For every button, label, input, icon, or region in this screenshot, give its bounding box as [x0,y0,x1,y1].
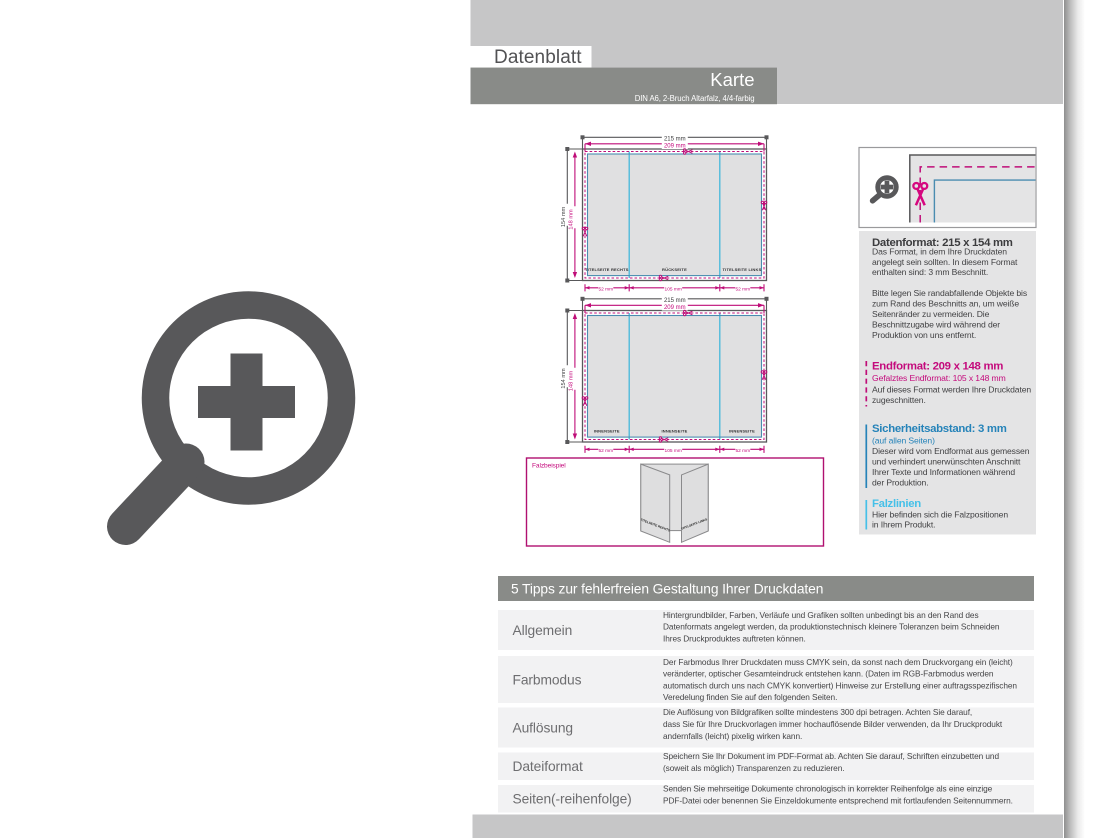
svg-text:Falzbeispiel: Falzbeispiel [532,463,566,470]
svg-text:52 mm: 52 mm [735,448,750,454]
svg-text:automatisch durch uns nach CMY: automatisch durch uns nach CMYK konverti… [663,680,1017,690]
svg-text:(soweit als möglich) Transpare: (soweit als möglich) Transparenzen zu re… [663,763,844,773]
svg-text:Das Format, in dem Ihre Druckd: Das Format, in dem Ihre Druckdaten [872,246,1007,256]
svg-text:veränderter, optischer Gesamte: veränderter, optischer Gesamteindruck en… [663,669,994,679]
svg-text:zugeschnitten.: zugeschnitten. [872,395,926,405]
svg-text:INNENSEITE: INNENSEITE [661,428,687,433]
svg-text:INNENSEITE: INNENSEITE [729,428,755,433]
svg-text:52 mm: 52 mm [598,448,613,454]
svg-text:Datenblatt: Datenblatt [494,47,582,68]
svg-text:Gefalztes Endformat: 105 x 148: Gefalztes Endformat: 105 x 148 mm [872,373,1006,383]
svg-text:209 mm: 209 mm [664,143,686,149]
svg-text:enthalten sind: 3 mm Beschnitt: enthalten sind: 3 mm Beschnitt. [872,267,988,277]
svg-text:Karte: Karte [710,69,754,90]
svg-text:Senden Sie mehrseitige Dokumen: Senden Sie mehrseitige Dokumente chronol… [663,784,993,794]
svg-text:154 mm: 154 mm [561,207,567,228]
svg-text:105 mm: 105 mm [665,448,682,454]
svg-text:Ihres Druckproduktes auftreten: Ihres Druckproduktes auftreten können. [663,633,806,643]
svg-text:Seitenränder zu vermeiden. Die: Seitenränder zu vermeiden. Die [872,309,990,319]
svg-text:Hintergrundbilder, Farben, Ver: Hintergrundbilder, Farben, Verläufe und … [663,610,979,620]
svg-text:Speichern Sie Ihr Dokument im: Speichern Sie Ihr Dokument im PDF-Format… [663,751,999,761]
svg-text:Sicherheitsabstand: 3 mm: Sicherheitsabstand: 3 mm [872,423,1007,435]
svg-text:Falzlinien: Falzlinien [872,498,921,510]
svg-text:Datenformats angelegt werden,: Datenformats angelegt werden, da produkt… [663,622,1000,632]
svg-text:TITELSEITE LINKS: TITELSEITE LINKS [723,267,762,272]
svg-text:Produktion von uns entfernt.: Produktion von uns entfernt. [872,330,976,340]
svg-text:Farbmodus: Farbmodus [513,672,582,687]
svg-text:dass Sie für Ihre Druckvorlage: dass Sie für Ihre Druckvorlagen immer ho… [663,719,1003,729]
svg-text:TITELSEITE RECHTS: TITELSEITE RECHTS [585,267,629,272]
svg-text:52 mm: 52 mm [598,287,613,293]
svg-text:der Produktion.: der Produktion. [872,477,928,487]
svg-text:andernfalls (leicht) pixelig w: andernfalls (leicht) pixelig wirken kann… [663,731,802,741]
svg-text:105 mm: 105 mm [665,287,682,293]
svg-text:Ihrer Texte und Informationen: Ihrer Texte und Informationen während [872,467,1015,477]
svg-text:Veredelung finden Sie auf den: Veredelung finden Sie auf den folgenden … [663,692,837,702]
svg-text:Seiten(-reihenfolge): Seiten(-reihenfolge) [513,792,632,807]
svg-text:INNENSEITE: INNENSEITE [594,428,620,433]
svg-text:Endformat: 209 x 148 mm: Endformat: 209 x 148 mm [872,360,1003,372]
svg-text:Auflösung: Auflösung [513,720,573,735]
svg-text:Dateiformat: Dateiformat [513,759,583,774]
svg-text:148 mm: 148 mm [569,209,575,230]
svg-text:5 Tipps zur fehlerfreien Gesta: 5 Tipps zur fehlerfreien Gestaltung Ihre… [511,582,823,597]
svg-text:209 mm: 209 mm [664,305,686,311]
svg-text:Der Farbmodus Ihrer Druckdaten: Der Farbmodus Ihrer Druckdaten muss CMYK… [663,657,1013,667]
svg-text:DIN A6, 2-Bruch Altarfalz, 4/4: DIN A6, 2-Bruch Altarfalz, 4/4-farbig [635,94,755,103]
svg-text:PDF-Datei oder benennen Sie Ei: PDF-Datei oder benennen Sie Einzeldokume… [663,796,1013,806]
svg-text:Dieser wird vom Endformat aus: Dieser wird vom Endformat aus gemessen [872,446,1030,456]
svg-text:148 mm: 148 mm [569,371,575,392]
svg-text:Die Auflösung von Bildgrafiken: Die Auflösung von Bildgrafiken sollte mi… [663,707,972,717]
svg-text:RÜCKSEITE: RÜCKSEITE [662,267,687,272]
svg-text:Hier befinden sich die Falzpos: Hier befinden sich die Falzpositionen [872,509,1008,519]
svg-text:angelegt sein sollten. In dies: angelegt sein sollten. In diesem Format [872,257,1018,267]
svg-text:und verhindert unerwünschten A: und verhindert unerwünschten Anschnitt [872,456,1021,466]
svg-text:Allgemein: Allgemein [513,623,573,638]
svg-text:(auf allen Seiten): (auf allen Seiten) [872,436,935,446]
svg-text:Bitte legen Sie randabfallende: Bitte legen Sie randabfallende Objekte b… [872,288,1027,298]
svg-text:zum Rand des Beschnitts an, um: zum Rand des Beschnitts an, um weiße [872,298,1019,308]
svg-text:154 mm: 154 mm [561,368,567,389]
svg-text:52 mm: 52 mm [735,287,750,293]
svg-text:Auf dieses Format werden Ihre: Auf dieses Format werden Ihre Druckdaten [872,384,1031,394]
svg-text:Beschnittzugabe wird während d: Beschnittzugabe wird während der [872,319,1000,329]
svg-text:in Ihrem Produkt.: in Ihrem Produkt. [872,520,935,530]
